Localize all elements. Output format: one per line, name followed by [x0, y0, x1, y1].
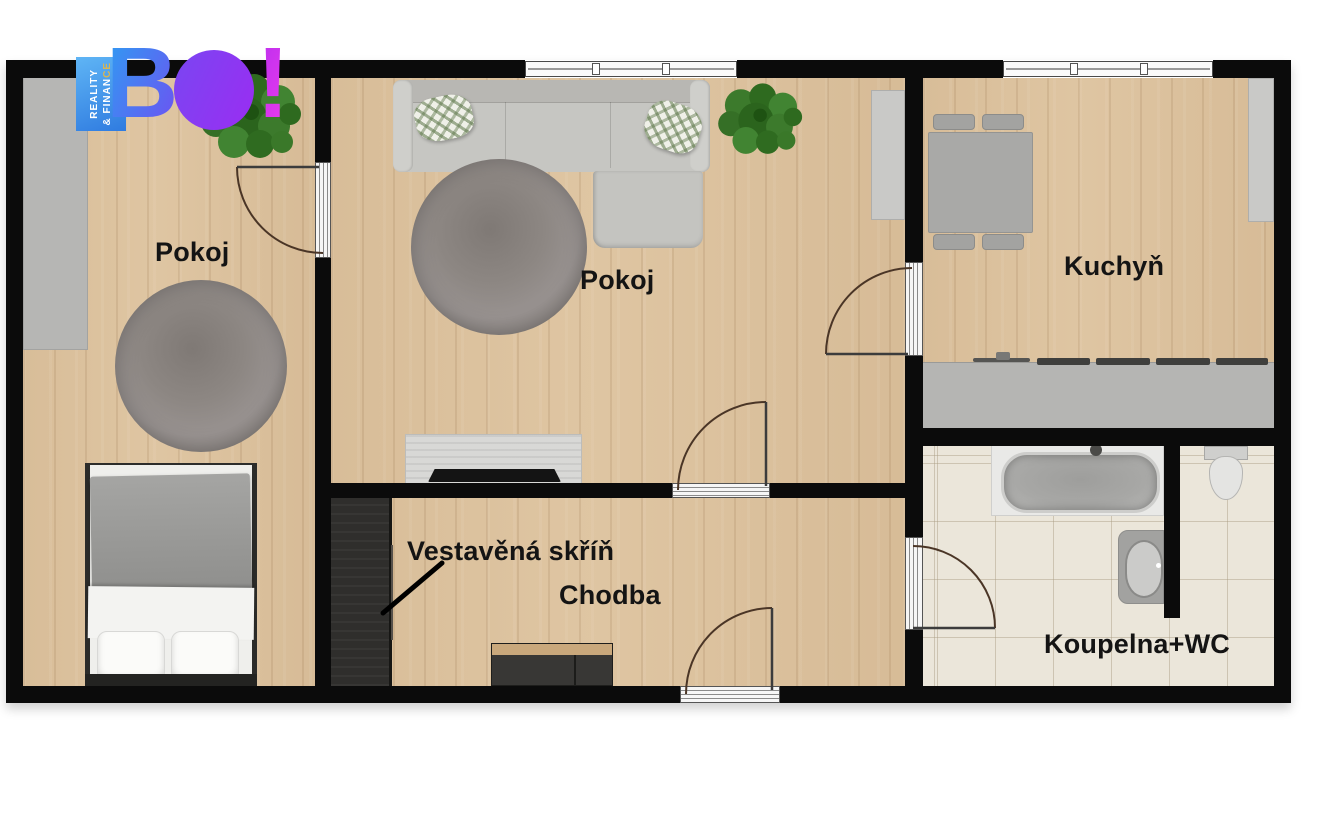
- bench-top: [492, 644, 612, 655]
- wall: [780, 686, 1291, 703]
- cabinet-handle: [1216, 358, 1268, 365]
- wall: [905, 60, 923, 262]
- tv-stand: [405, 434, 582, 484]
- dining-chair: [982, 234, 1024, 250]
- window-glass-line: [1006, 68, 1210, 70]
- sofa-seam: [610, 102, 611, 168]
- washbasin-faucet: [1156, 563, 1161, 568]
- window-divider: [592, 63, 600, 75]
- door-frame-hallway: [672, 483, 770, 498]
- plant-leaves: [718, 83, 802, 153]
- kitchen-faucet: [996, 352, 1010, 360]
- wardrobe-edge-line: [391, 545, 393, 640]
- round-rug-living: [411, 159, 587, 335]
- room-label-pokoj-2: Pokoj: [580, 265, 655, 296]
- cabinet-handle: [1156, 358, 1210, 365]
- wall: [1274, 60, 1291, 703]
- dining-chair: [933, 114, 975, 130]
- kitchen-counter: [923, 362, 1274, 428]
- round-rug-room1: [115, 280, 287, 452]
- sofa-chaise: [593, 171, 703, 248]
- logo-exclamation: !: [256, 36, 289, 131]
- bathtub: [991, 441, 1164, 516]
- cabinet-handle: [1037, 358, 1090, 365]
- bench-divider: [574, 655, 576, 685]
- brand-logo: REALITY & FINANCE B O !: [70, 36, 280, 146]
- potted-plant-living: [714, 74, 808, 170]
- dining-chair: [982, 114, 1024, 130]
- dining-chair: [933, 234, 975, 250]
- cabinet-handle: [1096, 358, 1150, 365]
- window-living: [525, 61, 737, 77]
- room-label-hallway: Chodba: [559, 580, 661, 611]
- bed-duvet: [90, 473, 252, 592]
- tv: [428, 469, 561, 482]
- wall: [315, 258, 331, 703]
- logo-letter-b: B: [106, 36, 174, 131]
- wall: [905, 630, 923, 703]
- washbasin-bowl: [1125, 540, 1163, 598]
- bed-headboard: [85, 674, 257, 686]
- room-label-bathroom: Koupelna+WC: [1044, 629, 1230, 660]
- shoe-bench: [491, 643, 613, 686]
- bathroom-divider-wall: [1164, 446, 1180, 618]
- label-built-in-wardrobe: Vestavěná skříň: [407, 536, 614, 567]
- window-divider: [1140, 63, 1148, 75]
- tall-cabinet-living: [871, 90, 905, 220]
- wall: [905, 428, 1291, 446]
- wall: [6, 686, 680, 703]
- door-frame-bathroom: [905, 537, 923, 630]
- wall: [770, 483, 905, 498]
- built-in-wardrobe: [331, 498, 392, 686]
- door-frame-kitchen: [905, 262, 923, 356]
- room-label-pokoj-1: Pokoj: [155, 237, 230, 268]
- room-label-kitchen: Kuchyň: [1064, 251, 1164, 282]
- sofa-seam: [505, 102, 506, 168]
- floor-plan: Pokoj Pokoj Kuchyň Vestavěná skříň Chodb…: [0, 0, 1323, 820]
- logo-tagline-line1: REALITY: [89, 69, 101, 119]
- sofa-arm-left: [393, 80, 413, 172]
- kitchen-cabinet-right: [1248, 78, 1274, 222]
- window-divider: [1070, 63, 1078, 75]
- wall: [315, 483, 672, 498]
- window-glass-line: [528, 68, 734, 70]
- wall: [6, 60, 23, 703]
- dining-table: [928, 132, 1033, 233]
- logo-wordmark: B O !: [106, 36, 290, 131]
- wall: [315, 60, 331, 162]
- logo-letter-o-disc: O: [174, 50, 254, 130]
- bathtub-basin: [1001, 452, 1160, 513]
- door-frame-room1: [315, 162, 331, 258]
- washbasin: [1118, 530, 1164, 604]
- wall: [905, 356, 923, 537]
- double-bed: [85, 463, 257, 686]
- door-frame-entrance: [680, 686, 780, 703]
- window-kitchen: [1003, 61, 1213, 77]
- window-divider: [662, 63, 670, 75]
